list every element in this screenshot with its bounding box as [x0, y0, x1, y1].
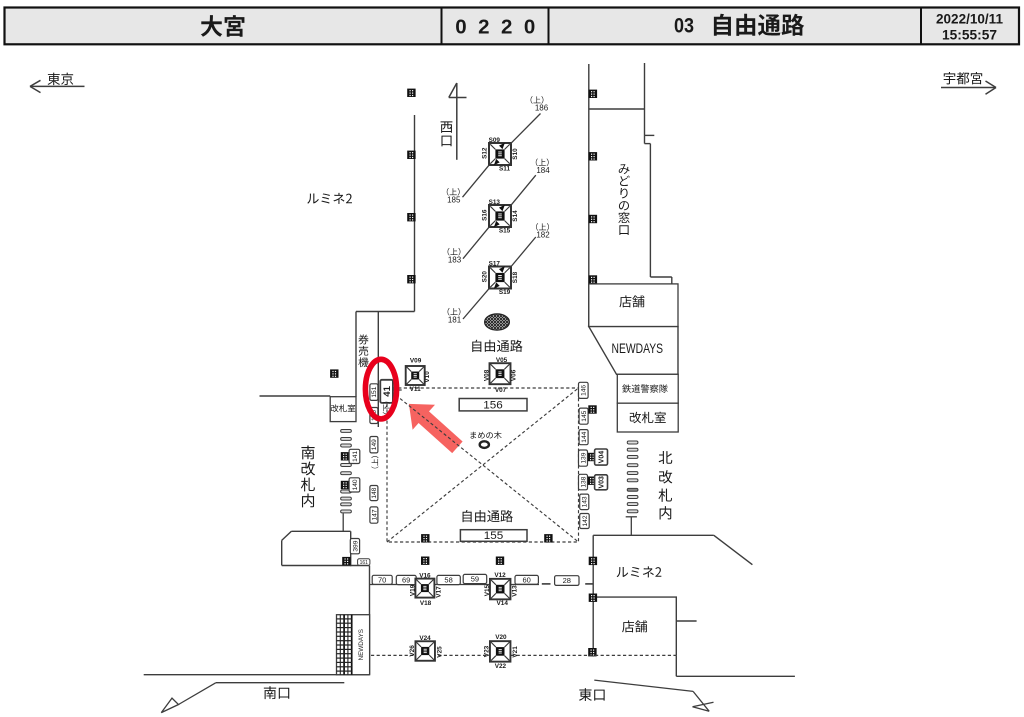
svg-text:NEWDAYS: NEWDAYS [612, 340, 664, 356]
svg-text:146: 146 [581, 385, 588, 396]
svg-text:V05: V05 [496, 357, 508, 364]
svg-text:151: 151 [371, 386, 378, 397]
svg-text:V17: V17 [436, 586, 443, 598]
svg-text:184: 184 [536, 166, 550, 175]
svg-text:S18: S18 [512, 271, 519, 283]
svg-text:S20: S20 [482, 271, 489, 283]
svg-text:183: 183 [448, 255, 462, 264]
svg-text:S16: S16 [482, 209, 489, 221]
svg-text:2022/10/11: 2022/10/11 [936, 11, 1003, 26]
svg-text:59: 59 [471, 575, 479, 584]
svg-text:V24: V24 [419, 635, 431, 642]
svg-text:V26: V26 [409, 645, 416, 657]
svg-text:S12: S12 [482, 147, 489, 159]
svg-text:V08: V08 [484, 369, 491, 381]
svg-text:161: 161 [360, 560, 369, 566]
svg-text:V21: V21 [512, 646, 519, 658]
svg-text:70: 70 [378, 576, 386, 585]
svg-text:V12: V12 [494, 572, 506, 579]
svg-text:S09: S09 [489, 137, 501, 144]
svg-text:148: 148 [371, 487, 378, 498]
svg-text:147: 147 [371, 509, 378, 520]
svg-text:182: 182 [536, 231, 550, 240]
svg-text:S19: S19 [499, 289, 511, 296]
svg-text:S10: S10 [512, 148, 519, 160]
svg-text:S15: S15 [499, 228, 511, 235]
svg-text:41: 41 [382, 385, 393, 396]
svg-text:V18: V18 [420, 600, 432, 607]
svg-text:186: 186 [535, 104, 549, 113]
svg-text:181: 181 [448, 315, 462, 324]
svg-text:V03: V03 [599, 476, 606, 489]
svg-text:S14: S14 [512, 210, 519, 222]
svg-text:03: 03 [674, 14, 694, 37]
svg-text:15:55:57: 15:55:57 [942, 27, 997, 42]
svg-text:0220: 0220 [455, 15, 547, 38]
svg-text:V23: V23 [484, 645, 491, 657]
svg-text:144: 144 [581, 431, 588, 442]
svg-text:143: 143 [581, 496, 588, 507]
svg-text:V09: V09 [410, 358, 422, 365]
svg-text:V16: V16 [419, 572, 431, 579]
svg-text:149: 149 [371, 439, 378, 450]
svg-text:V22: V22 [495, 663, 507, 670]
svg-text:28: 28 [563, 576, 571, 585]
svg-text:V07: V07 [495, 387, 507, 394]
svg-text:V14: V14 [497, 600, 509, 607]
svg-text:60: 60 [523, 575, 531, 584]
svg-text:139: 139 [580, 452, 587, 463]
svg-text:138: 138 [580, 476, 587, 487]
svg-text:S13: S13 [489, 199, 501, 206]
svg-text:185: 185 [447, 195, 461, 204]
svg-text:V06: V06 [510, 369, 517, 381]
svg-text:V13: V13 [511, 585, 518, 597]
svg-text:155: 155 [484, 530, 504, 542]
svg-text:V15: V15 [484, 584, 491, 596]
svg-text:58: 58 [444, 576, 452, 585]
svg-text:V10: V10 [424, 371, 431, 383]
svg-text:V19: V19 [409, 584, 416, 596]
svg-text:V04: V04 [599, 451, 606, 464]
svg-text:69: 69 [402, 576, 410, 585]
svg-text:140: 140 [352, 479, 359, 490]
svg-text:V25: V25 [437, 646, 444, 658]
svg-text:399: 399 [352, 540, 359, 551]
svg-text:156: 156 [483, 399, 503, 411]
svg-text:NEWDAYS: NEWDAYS [358, 629, 365, 660]
svg-text:V11: V11 [410, 386, 421, 393]
svg-text:145: 145 [581, 410, 588, 421]
svg-text:V20: V20 [495, 634, 507, 641]
svg-text:S17: S17 [489, 260, 501, 267]
svg-text:S11: S11 [499, 166, 510, 173]
svg-text:142: 142 [582, 515, 589, 526]
svg-text:141: 141 [352, 451, 359, 462]
